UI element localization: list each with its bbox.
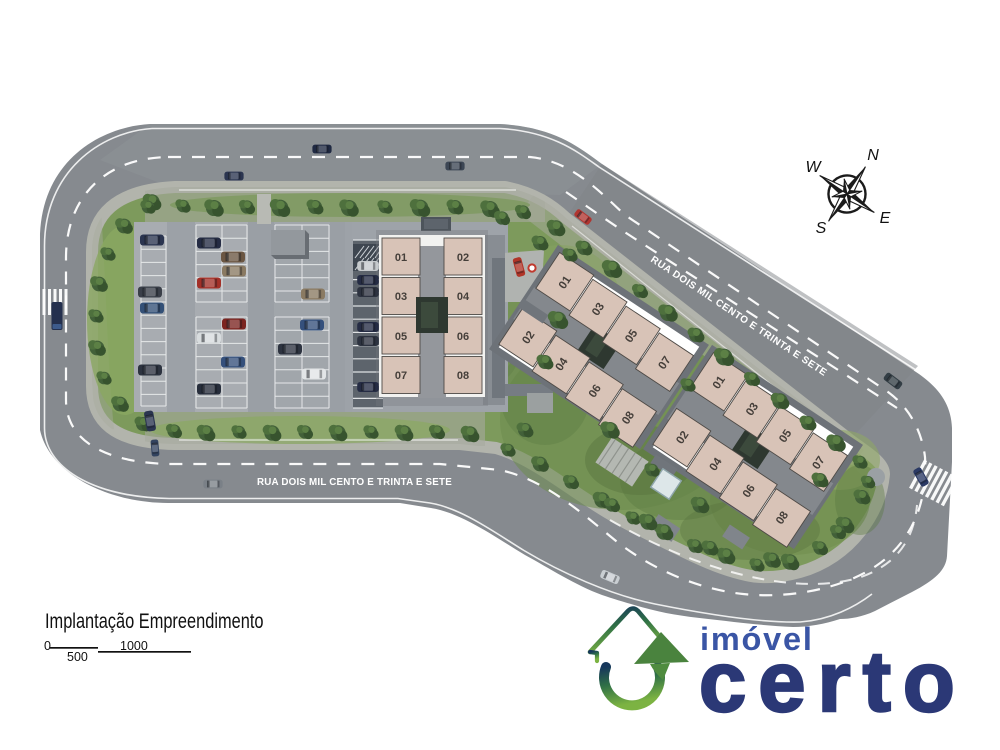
svg-text:S: S [816,220,827,237]
svg-text:RUA DOIS MIL CENTO E TRINTA E: RUA DOIS MIL CENTO E TRINTA E SETE [257,477,452,488]
svg-text:W: W [805,159,822,176]
svg-text:01: 01 [395,252,407,264]
svg-text:07: 07 [395,370,407,382]
svg-text:06: 06 [457,331,469,343]
svg-text:certo: certo [699,635,967,730]
svg-text:08: 08 [457,370,469,382]
svg-text:N: N [867,147,879,164]
svg-text:02: 02 [457,252,469,264]
svg-text:04: 04 [457,291,470,303]
svg-text:0: 0 [44,639,51,653]
svg-text:500: 500 [67,650,88,664]
svg-text:1000: 1000 [120,639,148,653]
svg-text:Implantação Empreendimento: Implantação Empreendimento [45,609,263,632]
svg-text:E: E [880,210,891,227]
svg-text:03: 03 [395,291,407,303]
svg-text:05: 05 [395,331,407,343]
